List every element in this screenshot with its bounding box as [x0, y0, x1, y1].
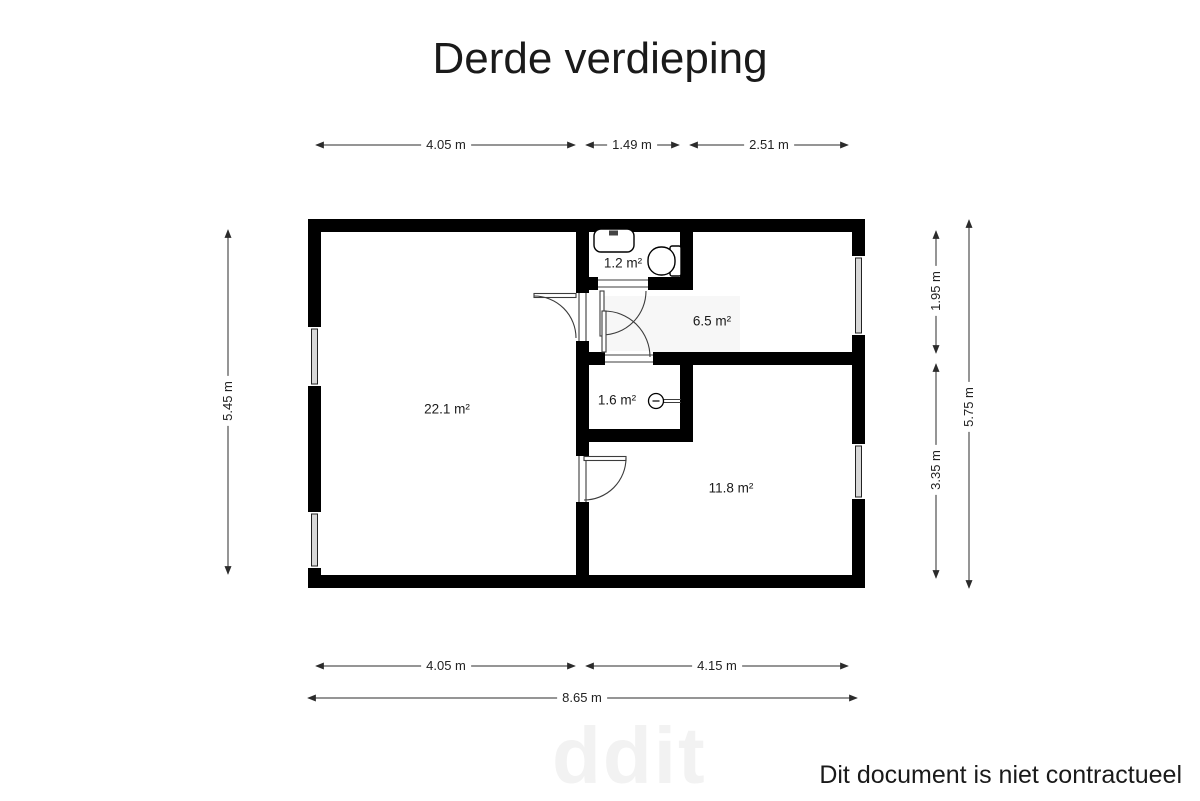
sink-icon	[594, 229, 634, 252]
dim-label-right-total: 5.75 m	[961, 382, 977, 432]
room-label-bathroom: 1.2 m²	[604, 256, 642, 271]
wc-right-wall	[680, 352, 693, 442]
door-symbol-living-room	[534, 293, 590, 341]
wc-bottom-wall	[576, 429, 693, 442]
outer-wall-top	[308, 219, 865, 232]
room-label-living: 22.1 m²	[424, 402, 470, 417]
room-label-wc: 1.6 m²	[598, 393, 636, 408]
window-symbol-right-lower	[850, 444, 867, 499]
dim-label-bottom-total: 8.65 m	[557, 690, 607, 706]
mid-wall-left	[576, 352, 605, 365]
floorplan-page: ddit Derde verdieping	[0, 0, 1200, 801]
dim-label-right-2: 3.35 m	[928, 445, 944, 495]
bathroom-bottom-wall-left	[576, 277, 598, 290]
radiator-knob-icon	[649, 394, 682, 409]
window-symbol-left-upper	[306, 327, 323, 386]
dim-label-top-3: 2.51 m	[744, 137, 794, 153]
room-label-bedroom: 11.8 m²	[709, 481, 754, 496]
footer-disclaimer: Dit document is niet contractueel	[819, 761, 1182, 790]
window-symbol-left-lower	[306, 512, 323, 568]
dim-label-bottom-1: 4.05 m	[421, 658, 471, 674]
window-symbol-right-upper	[850, 256, 867, 335]
bathroom-bottom-wall-right	[648, 277, 693, 290]
dim-label-top-2: 1.49 m	[607, 137, 657, 153]
interior-wall-center-lower	[576, 502, 589, 575]
toilet-icon	[648, 246, 681, 276]
room-label-hall: 6.5 m²	[693, 314, 731, 329]
outer-wall-bottom	[308, 575, 865, 588]
walls	[308, 219, 865, 588]
door-symbol-bedroom	[575, 456, 626, 502]
dim-label-left-total: 5.45 m	[220, 376, 236, 426]
dim-label-bottom-2: 4.15 m	[692, 658, 742, 674]
dim-label-right-1: 1.95 m	[928, 266, 944, 316]
dim-label-top-1: 4.05 m	[421, 137, 471, 153]
